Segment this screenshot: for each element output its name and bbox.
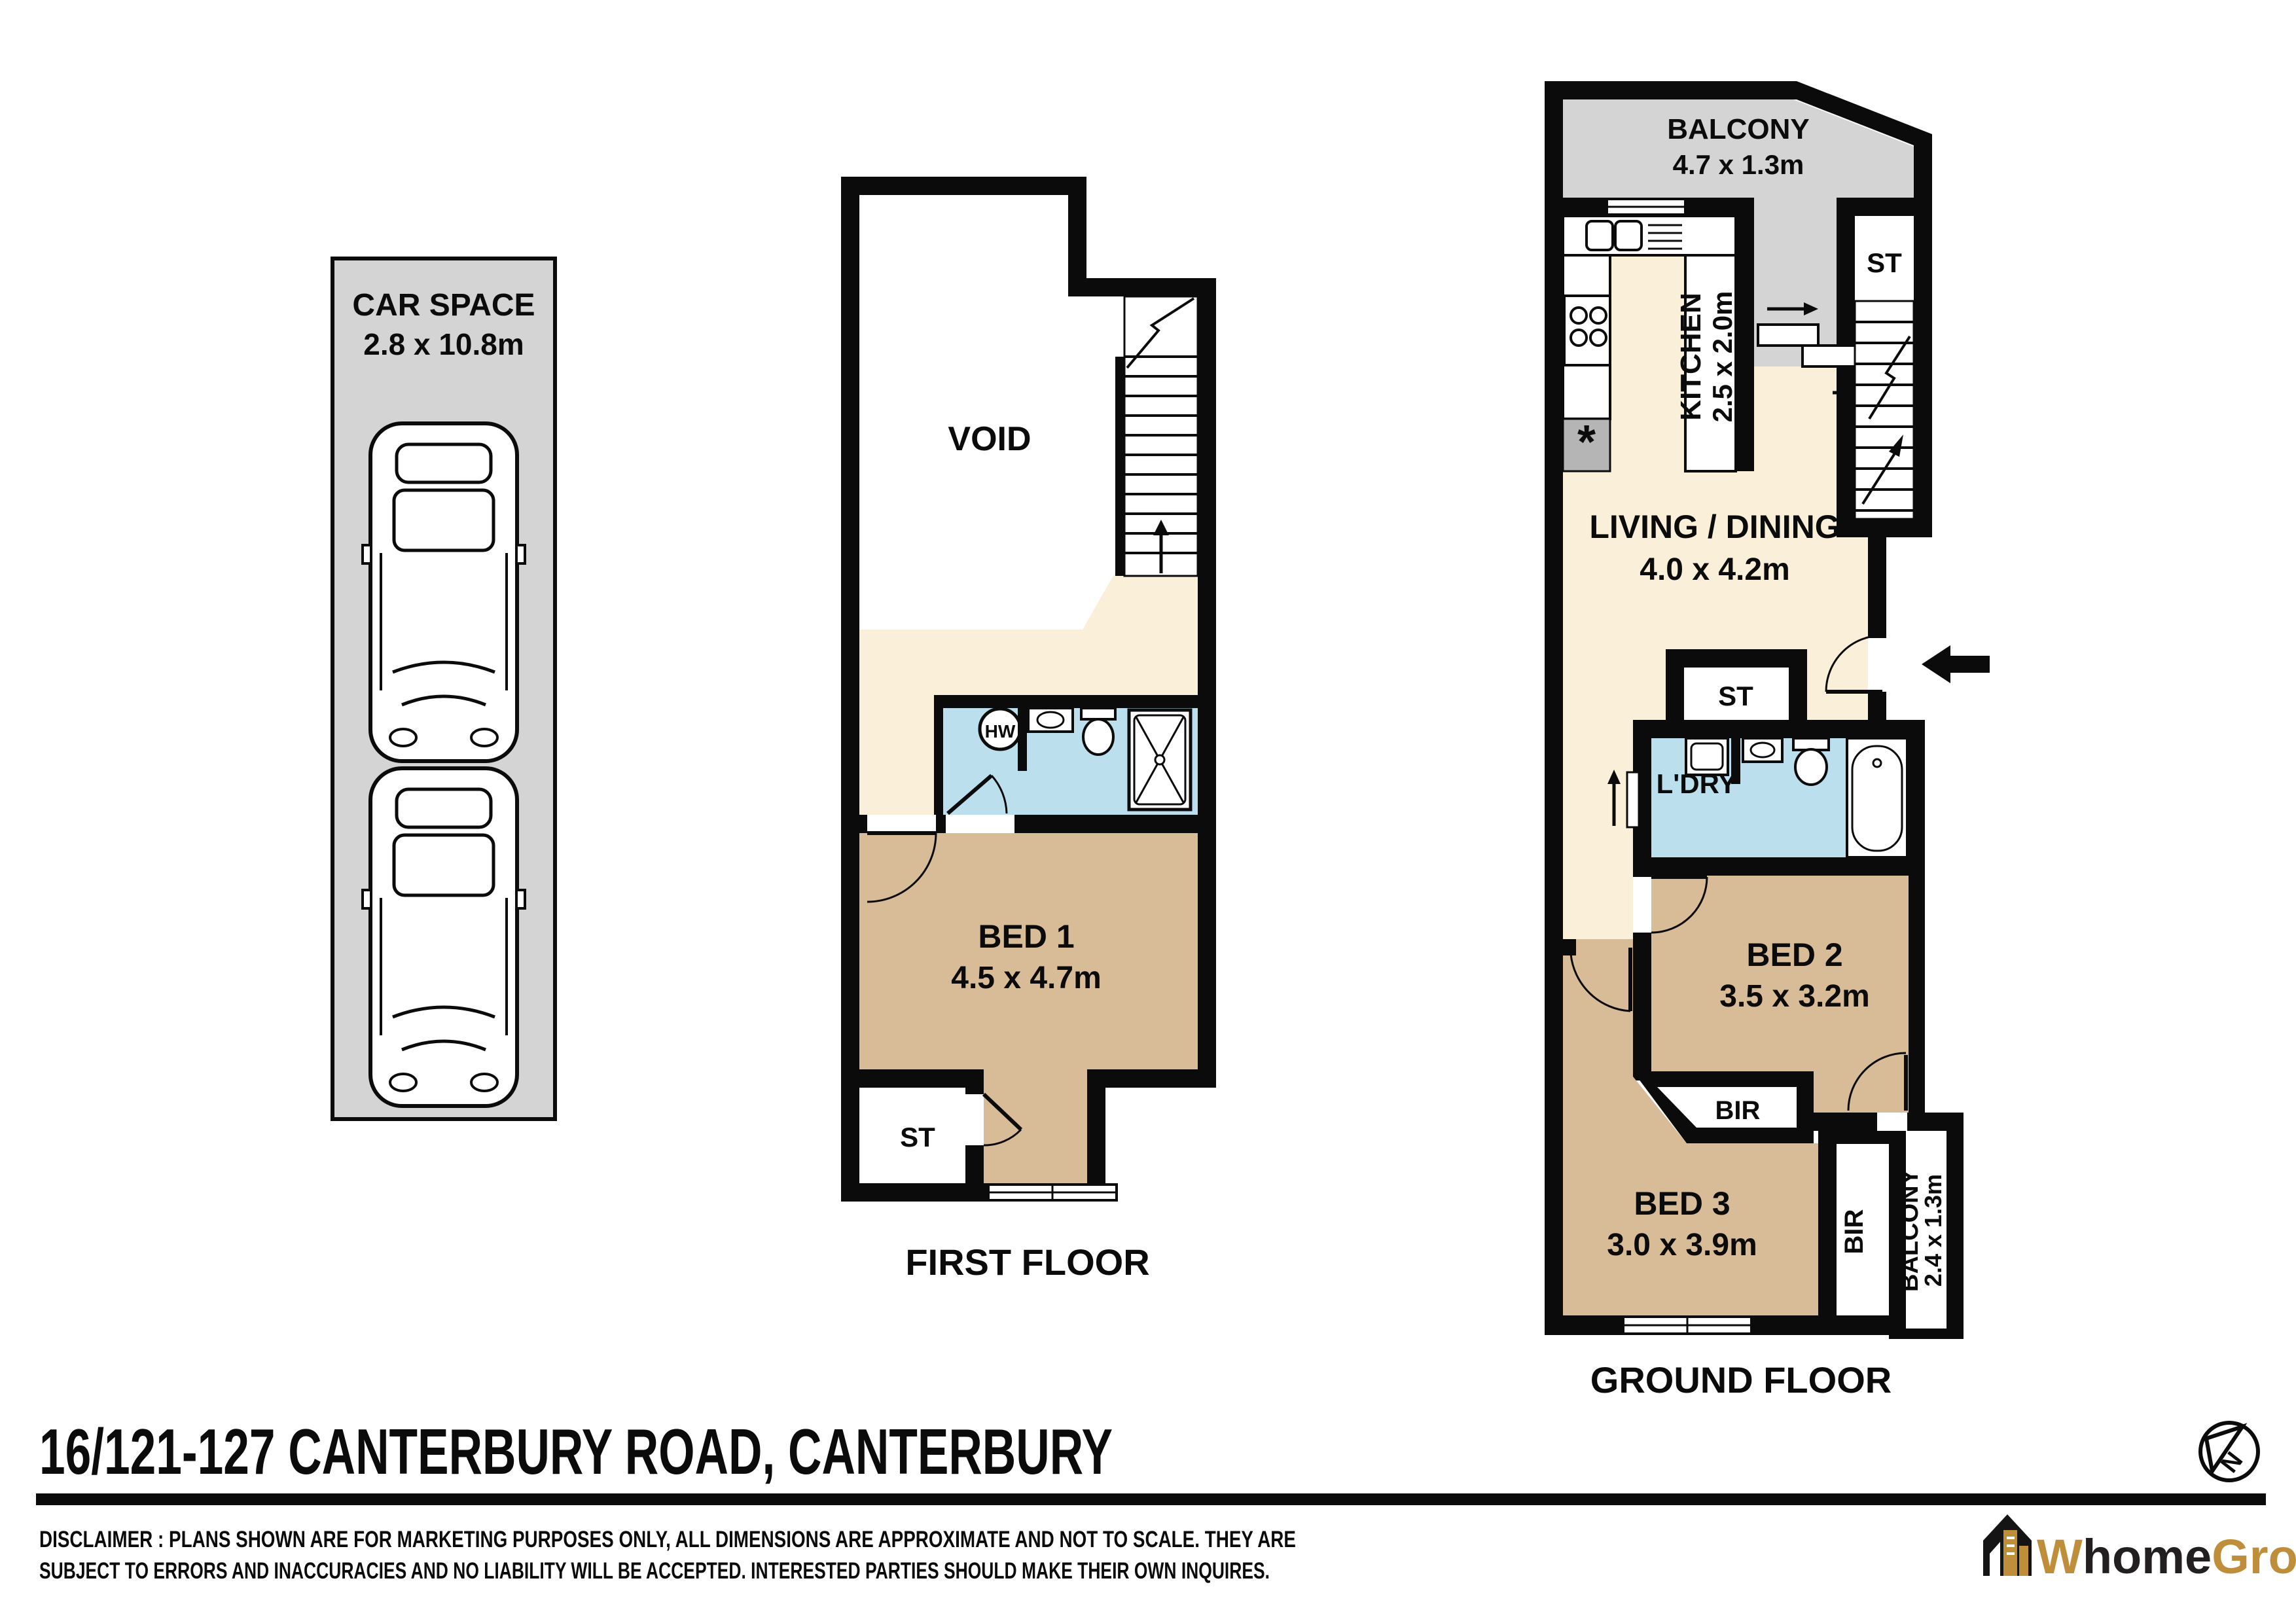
car-icon: [363, 423, 525, 761]
title-block: 16/121-127 CANTERBURY ROAD, CANTERBURY D…: [36, 1416, 2296, 1584]
shower-drain: [1155, 755, 1164, 764]
hall-corridor: [1563, 720, 1633, 939]
entry-arrow-head: [1922, 645, 1950, 683]
step: [1758, 325, 1818, 346]
built-in-robe-strip-label: BIR: [1840, 1209, 1869, 1254]
logo-text-home: home: [2083, 1529, 2212, 1584]
step: [1803, 346, 1863, 366]
room-storage-first-label: ST: [900, 1122, 935, 1152]
wall-segment: [1014, 815, 1198, 833]
wall-segment: [841, 177, 1086, 195]
logo-text: WhomeGroup: [2037, 1529, 2296, 1584]
wall-segment: [1633, 933, 1651, 1080]
wall-segment: [1736, 198, 1754, 471]
wall-segment: [859, 815, 867, 833]
first-floor-plan: VOID HW: [841, 177, 1216, 1283]
door-panel: [1627, 772, 1639, 827]
sink-bowl: [1615, 221, 1641, 250]
door-opening: [1877, 1113, 1907, 1131]
room-bed3-dims: 3.0 x 3.9m: [1607, 1228, 1757, 1262]
wall-segment: [1068, 278, 1216, 296]
car-space-label: CAR SPACE: [352, 288, 535, 323]
basin-icon: [1751, 743, 1774, 757]
fridge-asterisk-icon: *: [1577, 416, 1596, 469]
wall-segment: [1818, 1131, 1837, 1315]
wall-segment: [1198, 278, 1216, 1088]
compass-north-label: N: [2215, 1447, 2248, 1478]
wall-segment: [1907, 720, 1925, 1131]
balcony-front-dims: 4.7 x 1.3m: [1673, 149, 1804, 180]
toilet-icon: [1083, 719, 1113, 755]
wall-segment: [1087, 1069, 1216, 1088]
wall-segment: [1946, 1113, 1964, 1339]
wall-segment: [936, 815, 946, 833]
door-opening: [965, 1094, 984, 1145]
first-floor-bed1: BED 1 4.5 x 4.7m ST: [859, 833, 1198, 1200]
wall-segment: [1633, 720, 1925, 738]
room-living-dims: 4.0 x 4.2m: [1640, 552, 1790, 587]
room-storage-upper-label: ST: [1867, 247, 1902, 278]
wall-segment: [1731, 738, 1740, 784]
car-space-plan: CAR SPACE 2.8 x 10.8m: [332, 259, 555, 1119]
ground-floor-bed2: BED 2 3.5 x 3.2m BIR: [1633, 876, 1909, 1143]
wall-segment: [934, 695, 943, 815]
title-divider: [36, 1493, 2266, 1505]
wall-segment: [1545, 939, 1576, 955]
disclaimer-line2: SUBJECT TO ERRORS AND INACCURACIES AND N…: [39, 1558, 1270, 1584]
room-bed1-label: BED 1: [978, 918, 1074, 955]
wall-segment: [1837, 519, 1932, 537]
car-space-dims: 2.8 x 10.8m: [363, 327, 524, 361]
ground-floor-caption: GROUND FLOOR: [1590, 1359, 1892, 1400]
wall-segment: [1907, 1113, 1946, 1131]
wall-segment: [1115, 357, 1124, 576]
wall-segment: [1868, 692, 1886, 720]
toilet-icon: [1795, 749, 1827, 785]
room-bed3-label: BED 3: [1634, 1185, 1730, 1222]
wall-segment: [841, 177, 859, 1202]
first-floor-caption: FIRST FLOOR: [905, 1241, 1149, 1283]
compass-icon: N: [2200, 1423, 2258, 1480]
wall-segment: [1068, 177, 1086, 278]
room-bed1-dims: 4.5 x 4.7m: [951, 961, 1102, 995]
logo-building-gold: [2019, 1546, 2028, 1576]
page-title: 16/121-127 CANTERBURY ROAD, CANTERBURY: [39, 1416, 1113, 1488]
hot-water-label: HW: [985, 721, 1016, 741]
disclaimer-line1: DISCLAIMER : PLANS SHOWN ARE FOR MARKETI…: [39, 1527, 1296, 1552]
room-living-label: LIVING / DINING: [1589, 508, 1840, 545]
whomegroup-logo: WhomeGroup: [1983, 1514, 2296, 1584]
balcony-front-label: BALCONY: [1667, 113, 1810, 145]
kitchen-dims: 2.5 x 2.0m: [1707, 291, 1738, 423]
basin-icon: [1037, 712, 1064, 728]
wall-segment: [1818, 1315, 1906, 1335]
room-bed2-label: BED 2: [1746, 936, 1842, 973]
wall-segment: [1633, 857, 1925, 876]
entry-arrow: [1950, 656, 1990, 673]
car-icon: [363, 768, 525, 1106]
balcony-rear-dims: 2.4 x 1.3m: [1920, 1174, 1946, 1287]
wall-segment: [1914, 134, 1932, 537]
wall-segment: [1545, 81, 1797, 99]
wall-segment: [859, 1069, 984, 1088]
logo-text-group: Group: [2212, 1529, 2296, 1584]
wall-segment: [934, 695, 1198, 708]
floorplan-canvas: CAR SPACE 2.8 x 10.8m VOID: [0, 0, 2296, 1623]
ground-floor-plan: BALCONY 4.7 x 1.3m: [1545, 81, 1990, 1400]
ground-floor-laundry: L'DRY: [1607, 738, 1907, 857]
toilet-cistern: [1081, 708, 1115, 719]
ground-floor-stairs: [1855, 301, 1914, 519]
room-bed2-dims: 3.5 x 3.2m: [1719, 979, 1870, 1014]
built-in-robe-label: BIR: [1715, 1096, 1761, 1125]
wall-segment: [1087, 1069, 1105, 1202]
wall-segment: [1545, 81, 1563, 1335]
kitchen-label: KITCHEN: [1675, 293, 1707, 421]
wall-segment: [1018, 708, 1027, 771]
room-void-label: VOID: [948, 420, 1031, 458]
room-storage-lower-label: ST: [1718, 681, 1753, 711]
logo-text-w: W: [2037, 1529, 2083, 1584]
sink-bowl: [1587, 221, 1613, 250]
first-floor-stairs: [1115, 296, 1198, 576]
wall-segment: [1868, 537, 1886, 638]
stairs-ground-floor: [1855, 301, 1914, 519]
door-threshold: [1576, 939, 1633, 955]
